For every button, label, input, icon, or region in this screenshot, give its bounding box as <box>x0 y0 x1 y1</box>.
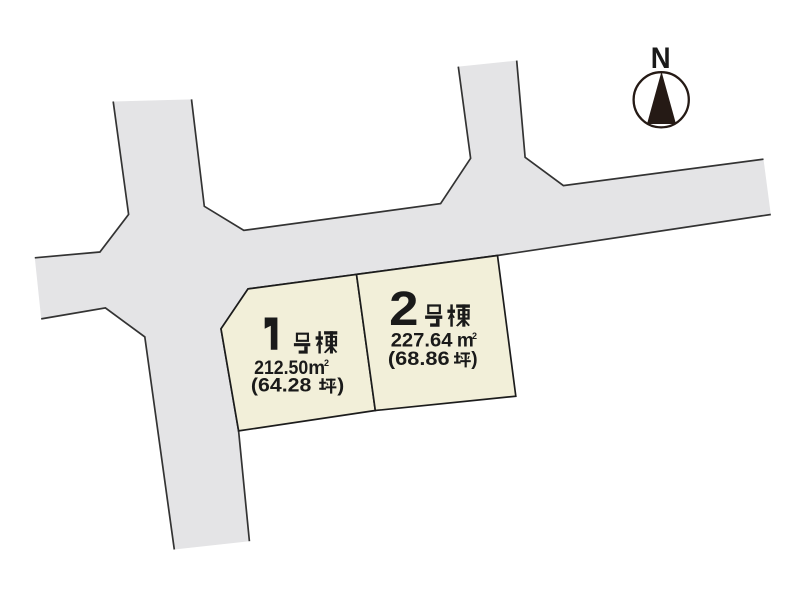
svg-text:2: 2 <box>472 331 477 341</box>
svg-text:): ) <box>337 375 344 396</box>
svg-text:2: 2 <box>389 281 418 335</box>
svg-text:N: N <box>651 42 671 75</box>
svg-text:2: 2 <box>324 358 329 368</box>
svg-text:(68.86: (68.86 <box>388 349 450 369</box>
svg-text:): ) <box>471 349 477 370</box>
svg-text:(64.28: (64.28 <box>251 376 311 397</box>
